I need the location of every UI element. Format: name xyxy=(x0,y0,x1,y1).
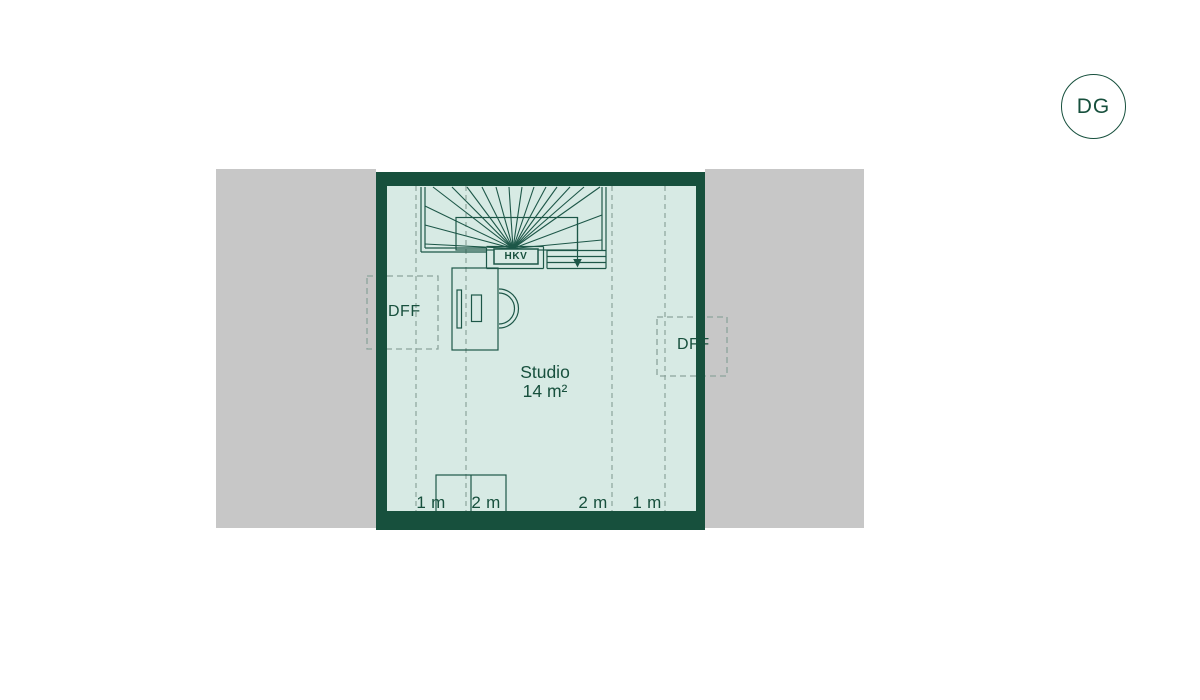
floor-plan-page: HKV DFF DFF Studio 14 m² 1 m2 m2 m1 m DG xyxy=(0,0,1200,700)
level-badge: DG xyxy=(1061,74,1126,139)
level-badge-label: DG xyxy=(1077,95,1111,119)
exterior-walls xyxy=(376,172,705,530)
